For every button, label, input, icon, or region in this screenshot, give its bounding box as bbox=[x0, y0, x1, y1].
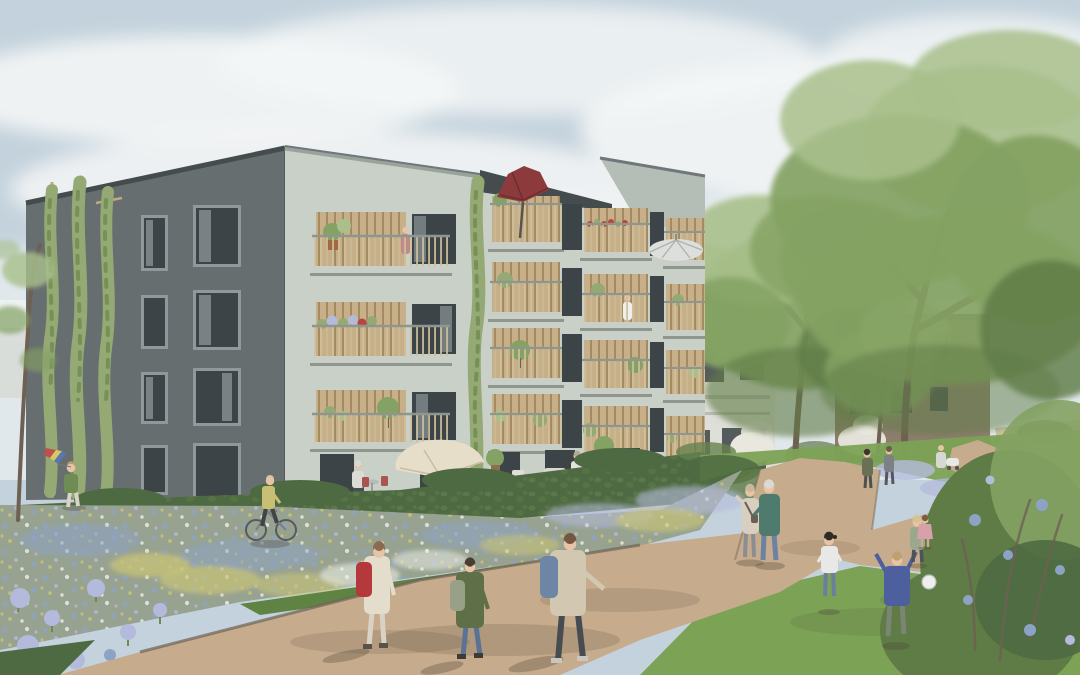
pram bbox=[946, 458, 959, 466]
balcony-b1 bbox=[488, 190, 564, 454]
loggia-a1 bbox=[310, 212, 456, 276]
ball bbox=[922, 575, 936, 589]
facade-dark bbox=[26, 148, 285, 500]
loggia-a2 bbox=[310, 302, 456, 366]
scene bbox=[0, 0, 1080, 675]
rendering-canvas bbox=[0, 0, 1080, 675]
